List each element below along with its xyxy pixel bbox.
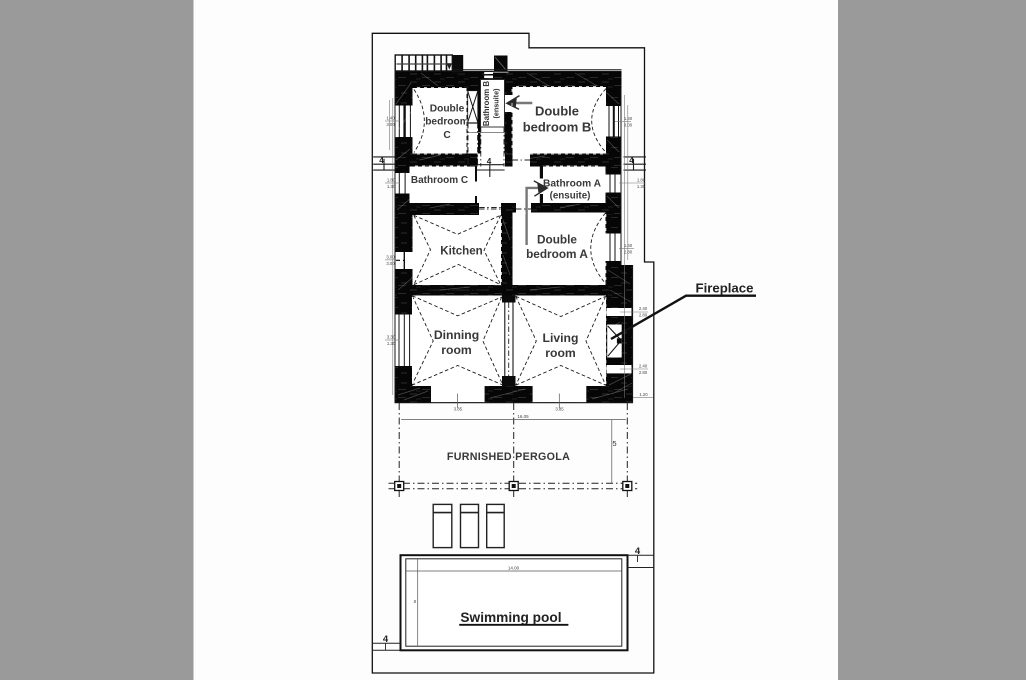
svg-text:4: 4	[487, 157, 492, 166]
svg-text:1.80: 1.80	[387, 178, 396, 183]
svg-text:2.80: 2.80	[624, 250, 633, 255]
svg-text:16.05: 16.05	[517, 414, 529, 419]
svg-text:3.30: 3.30	[387, 335, 396, 340]
svg-text:Bathroom A: Bathroom A	[543, 179, 602, 190]
svg-text:(ensuite): (ensuite)	[492, 88, 501, 119]
svg-text:3.00: 3.00	[386, 254, 395, 259]
svg-text:3.85: 3.85	[555, 407, 564, 412]
svg-text:1.40: 1.40	[386, 116, 395, 121]
svg-text:room: room	[441, 343, 472, 357]
svg-text:Dinning: Dinning	[434, 328, 479, 342]
svg-text:bedroom B: bedroom B	[523, 120, 592, 135]
svg-text:4: 4	[635, 546, 641, 557]
svg-text:4: 4	[383, 634, 389, 645]
svg-text:3.00: 3.00	[386, 122, 395, 127]
svg-text:2.80: 2.80	[639, 313, 648, 318]
svg-text:Bathroom B: Bathroom B	[482, 81, 491, 126]
svg-text:room: room	[545, 346, 576, 360]
svg-text:1.30: 1.30	[387, 184, 396, 189]
svg-text:Living: Living	[543, 331, 579, 345]
svg-text:Double: Double	[537, 233, 577, 247]
svg-text:14.00: 14.00	[508, 566, 520, 571]
svg-text:2.40: 2.40	[639, 364, 648, 369]
svg-text:2.80: 2.80	[639, 370, 648, 375]
svg-text:1.40: 1.40	[624, 243, 633, 248]
svg-text:1.80: 1.80	[637, 178, 646, 183]
svg-text:Fireplace: Fireplace	[696, 281, 754, 296]
svg-text:(ensuite): (ensuite)	[550, 191, 591, 202]
svg-text:4: 4	[379, 156, 384, 165]
svg-text:1.30: 1.30	[637, 184, 646, 189]
svg-text:Kitchen: Kitchen	[440, 245, 483, 258]
svg-text:FURNISHED PERGOLA: FURNISHED PERGOLA	[447, 451, 570, 463]
svg-text:1.20: 1.20	[639, 392, 648, 397]
svg-text:3.00: 3.00	[386, 261, 395, 266]
svg-text:Double: Double	[535, 104, 579, 119]
svg-text:1.30: 1.30	[387, 341, 396, 346]
svg-text:Swimming pool: Swimming pool	[460, 610, 561, 625]
svg-text:3.00: 3.00	[624, 123, 633, 128]
svg-text:bedroom A: bedroom A	[526, 247, 588, 261]
svg-text:C: C	[443, 130, 451, 141]
svg-text:Bathroom C: Bathroom C	[411, 175, 468, 186]
svg-text:1.40: 1.40	[624, 116, 633, 121]
svg-text:bedroom: bedroom	[425, 117, 469, 128]
svg-text:3.85: 3.85	[454, 407, 463, 412]
svg-text:2.40: 2.40	[639, 306, 648, 311]
svg-text:5: 5	[612, 439, 616, 448]
svg-text:Double: Double	[430, 104, 465, 115]
svg-text:4: 4	[629, 156, 634, 165]
